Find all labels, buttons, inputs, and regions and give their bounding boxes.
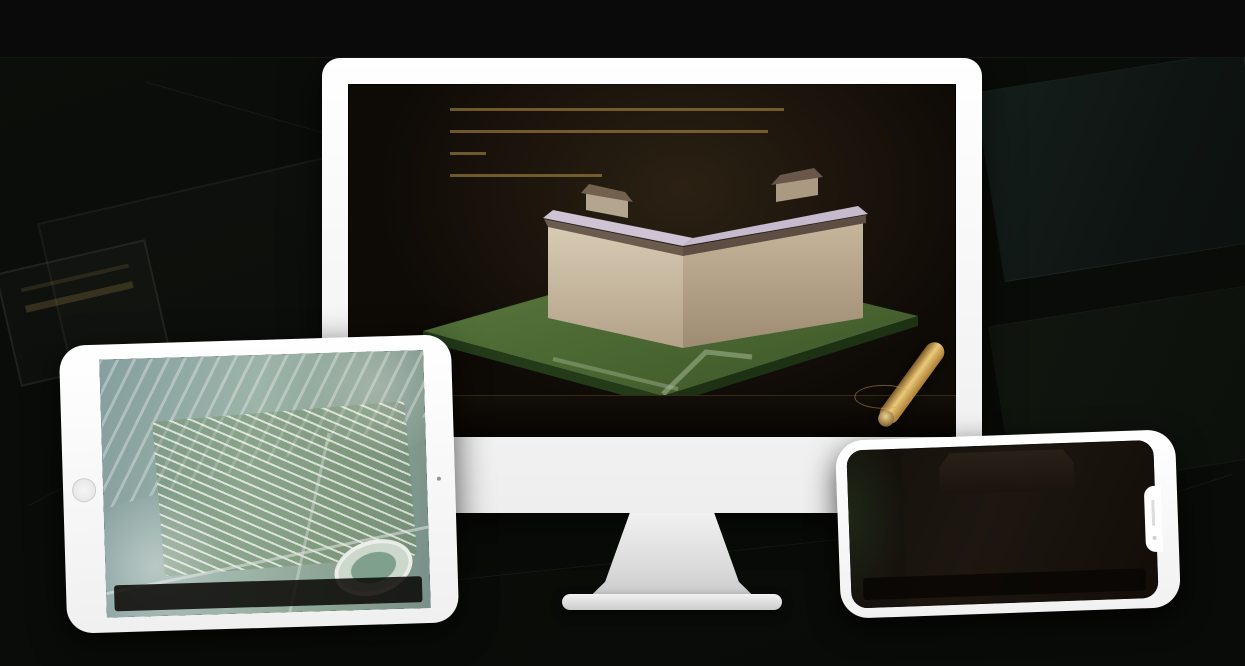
monitor-base (562, 594, 782, 610)
speaker-icon (1151, 500, 1155, 526)
phone-notch (1144, 486, 1163, 553)
title-band (0, 0, 1245, 58)
tablet-device (59, 334, 459, 634)
home-button-icon[interactable] (72, 478, 97, 503)
camera-icon (437, 477, 441, 481)
tablet-screen (99, 350, 431, 617)
description-line (450, 108, 784, 111)
unit-heading (374, 94, 376, 138)
description-line (450, 152, 486, 155)
monitor-stand (584, 513, 760, 599)
phone-screen (846, 440, 1158, 609)
description-line (450, 130, 768, 133)
pavilion-silhouette (939, 449, 1075, 495)
phone-device (835, 429, 1181, 619)
poster-stage (0, 0, 1245, 666)
background-screenshot (975, 50, 1245, 282)
camera-icon (1153, 536, 1157, 540)
